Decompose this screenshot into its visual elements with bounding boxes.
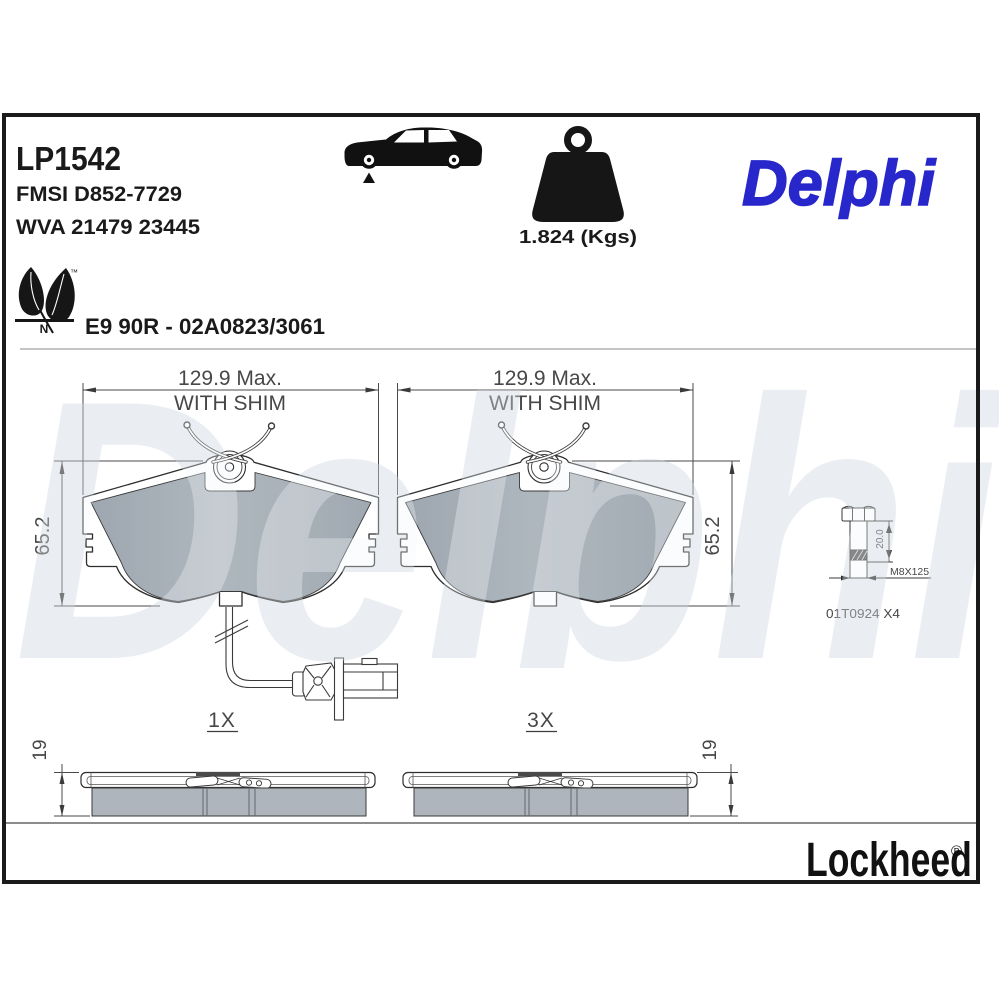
svg-text:WVA 21479 23445: WVA 21479 23445 bbox=[16, 216, 200, 239]
svg-text:FMSI D852-7729: FMSI D852-7729 bbox=[16, 183, 182, 206]
svg-text:Lockheed: Lockheed bbox=[806, 833, 972, 886]
svg-text:3X: 3X bbox=[527, 709, 555, 732]
svg-text:LP1542: LP1542 bbox=[16, 140, 121, 177]
svg-text:®: ® bbox=[951, 843, 962, 860]
svg-text:19: 19 bbox=[700, 739, 721, 760]
svg-text:Delphi: Delphi bbox=[742, 147, 936, 219]
svg-text:1X: 1X bbox=[208, 709, 236, 732]
svg-text:E9 90R - 02A0823/3061: E9 90R - 02A0823/3061 bbox=[85, 314, 325, 339]
svg-text:19: 19 bbox=[30, 739, 51, 760]
svg-text:N: N bbox=[40, 322, 49, 336]
svg-text:™: ™ bbox=[70, 268, 78, 277]
svg-text:1.824 (Kgs): 1.824 (Kgs) bbox=[519, 227, 637, 247]
